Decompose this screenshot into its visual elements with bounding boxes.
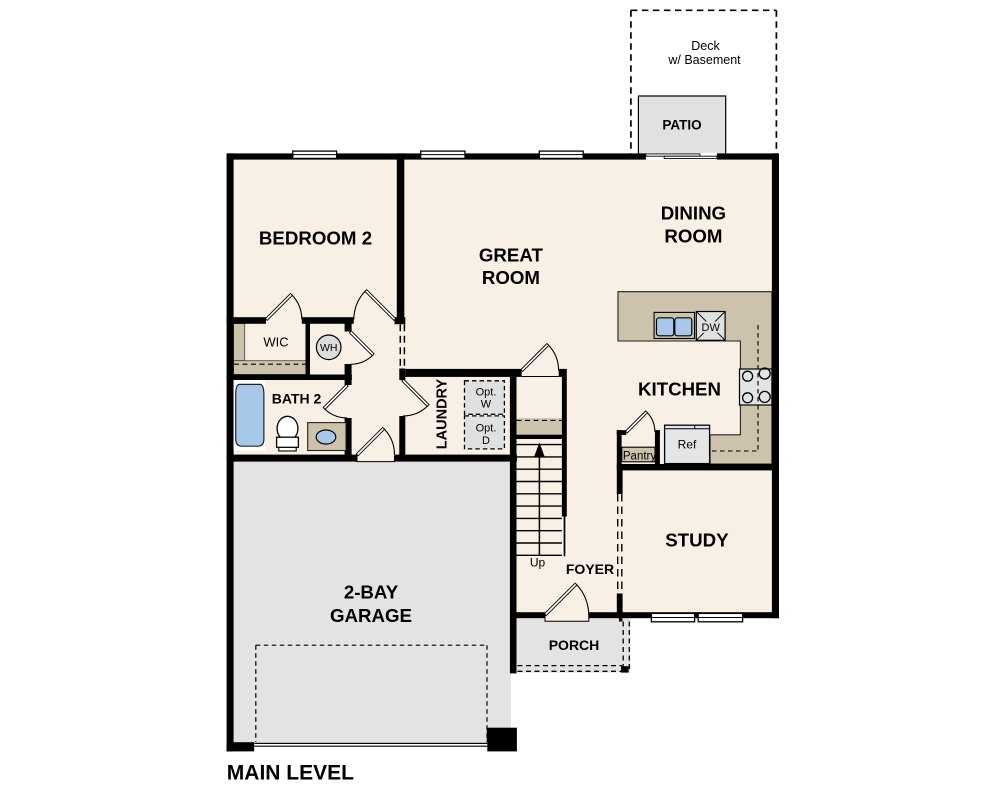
- svg-text:WH: WH: [320, 342, 338, 354]
- svg-text:2-BAY: 2-BAY: [344, 582, 399, 603]
- svg-text:GREAT: GREAT: [479, 244, 544, 265]
- svg-text:Opt.: Opt.: [476, 387, 497, 399]
- svg-text:Opt.: Opt.: [476, 423, 497, 435]
- svg-text:DINING: DINING: [661, 203, 726, 224]
- svg-text:Pantry: Pantry: [623, 450, 656, 462]
- svg-text:W: W: [481, 399, 492, 411]
- svg-text:LAUNDRY: LAUNDRY: [435, 379, 451, 450]
- svg-text:MAIN LEVEL: MAIN LEVEL: [227, 762, 354, 785]
- svg-text:Deck: Deck: [691, 39, 720, 53]
- svg-text:D: D: [482, 435, 490, 447]
- svg-text:ROOM: ROOM: [664, 226, 722, 247]
- svg-text:PORCH: PORCH: [549, 637, 600, 653]
- svg-text:Ref: Ref: [678, 438, 697, 452]
- svg-text:WIC: WIC: [263, 334, 288, 349]
- svg-text:STUDY: STUDY: [665, 530, 729, 551]
- svg-text:ROOM: ROOM: [482, 267, 540, 288]
- svg-text:Up: Up: [530, 556, 546, 570]
- svg-text:FOYER: FOYER: [566, 561, 614, 577]
- svg-text:GARAGE: GARAGE: [330, 605, 412, 626]
- svg-text:BEDROOM 2: BEDROOM 2: [259, 227, 372, 248]
- svg-text:DW: DW: [702, 322, 721, 334]
- svg-text:KITCHEN: KITCHEN: [638, 378, 721, 399]
- svg-text:w/ Basement: w/ Basement: [667, 53, 741, 67]
- svg-text:PATIO: PATIO: [662, 117, 701, 132]
- svg-text:BATH 2: BATH 2: [272, 391, 322, 407]
